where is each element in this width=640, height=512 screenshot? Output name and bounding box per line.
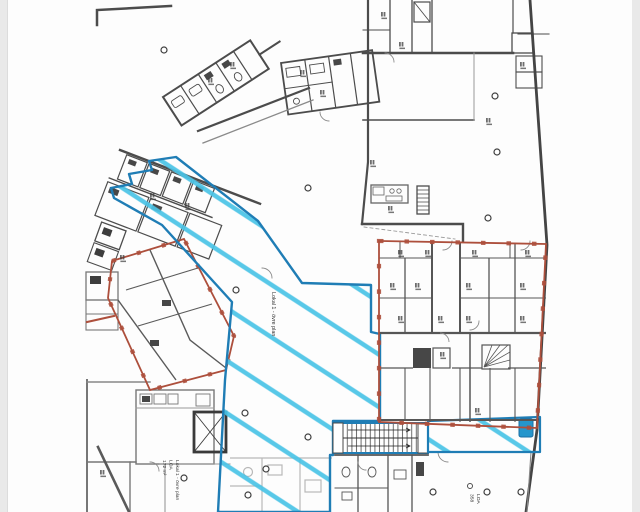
column [161, 47, 167, 53]
service-shaft [417, 186, 429, 214]
right-block-walls [379, 241, 546, 422]
label-lokal1-info-line3: 172 m² [161, 460, 167, 476]
label-lokal1-info-line1: Lokal 1 - övre plan [174, 460, 180, 501]
floor-plan-svg: Lokal 1 - övre plan Lokal 1 - övre plan … [0, 0, 640, 512]
label-loa-right-line1: LOA [475, 494, 481, 505]
label-lokal1-info: Lokal 1 - övre plan LOA 172 m² [161, 460, 180, 501]
left-small-rooms [87, 222, 126, 270]
lokal1-highlight-region [111, 157, 380, 512]
left-margin [0, 0, 7, 512]
label-lokal1-info-line2: LOA [167, 460, 173, 471]
winder-stair [482, 345, 510, 369]
label-loa-right: LOA 358 [469, 494, 481, 505]
lokal1-hatched-polygon [111, 157, 380, 512]
top-centre-rooms [281, 50, 379, 114]
rotated-room-block [163, 27, 289, 125]
right-margin [632, 0, 640, 512]
wc-rooms [335, 455, 428, 512]
kitchen-counter [371, 185, 408, 203]
red-boundary-right [379, 241, 546, 428]
scanned-floor-plan-page: Lokal 1 - övre plan Lokal 1 - övre plan … [0, 0, 640, 512]
label-lokal1: Lokal 1 - övre plan [270, 292, 276, 336]
stair [333, 423, 428, 453]
label-loa-right-line2: 358 [469, 494, 475, 502]
